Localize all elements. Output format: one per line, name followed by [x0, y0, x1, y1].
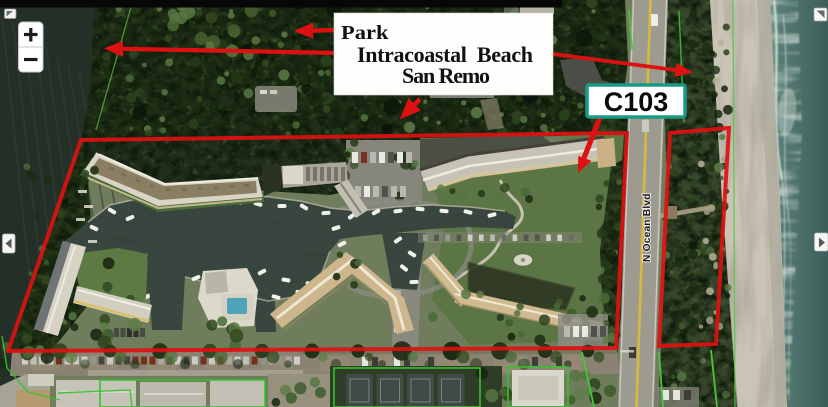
- svg-text:C103: C103: [604, 87, 669, 117]
- svg-text:San Remo: San Remo: [402, 63, 490, 88]
- svg-text:N Ocean Blvd: N Ocean Blvd: [642, 193, 653, 262]
- svg-text:Park: Park: [341, 21, 389, 43]
